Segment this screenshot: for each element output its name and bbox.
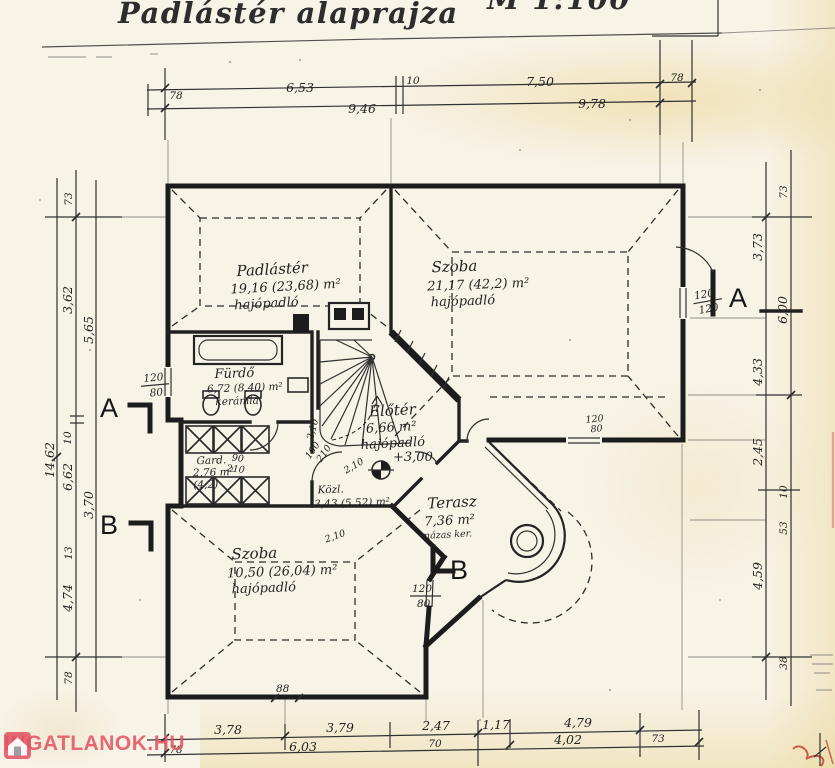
dim-label: 78 [169,90,183,102]
dim-label: 10 [406,75,420,87]
dim-label: 73 [778,185,790,199]
room-name: Előtér [368,400,418,421]
dim-label: 38 [778,656,790,670]
sink [288,378,308,392]
room-szoba-bottom: Szoba 10,50 (26,04) m² hajópadló [226,542,338,598]
dim-label: 4,74 [60,584,75,613]
room-area: 10,50 (26,04) m² [227,563,338,582]
room-floor: mázas ker. [421,528,473,542]
room-terasz: Terasz 7,36 m² mázas ker. [419,492,479,542]
svg-text:88: 88 [276,683,290,695]
dim-label: 3,70 [81,491,96,519]
dim-label: 73 [651,733,665,745]
dim-label: 4,33 [750,358,765,387]
title-block: Padlástér alaprajza M 1:100 [42,0,835,57]
room-floor: hajópadló [231,580,296,597]
dim-label: 53 [778,521,790,535]
scan-specks [39,59,761,721]
room-szoba-top: Szoba 21,17 (42,2) m² hajópadló [425,255,530,311]
room-area: 6,66 m² [366,419,417,437]
level-marker: +3,00 [368,450,433,479]
room-name: Fürdő [213,366,255,382]
room-floor: hajópadló [431,293,496,310]
margin-marks [39,59,833,766]
dim-label: 9,78 [578,96,606,111]
section-letter-a-left: A [100,393,118,423]
room-padlaster: Padlástér 19,16 (23,68) m² hajópadló [229,257,342,314]
room-name: Szoba [231,544,277,564]
level-value: +3,00 [393,450,433,465]
window-height: 80 [417,598,431,610]
terrace-column [511,525,543,557]
dim-label: 3,78 [214,722,242,737]
room-name: Szoba [431,257,477,277]
dim-label: 13 [63,546,75,560]
dim-label: 6,62 [60,463,75,491]
dim-chain-top: 78 6,53 10 7,50 78 9,46 9,78 [147,40,696,142]
dim-label: 73 [63,192,75,206]
dim-label: 3,62 [60,286,75,314]
dim-label: 7,50 [526,74,554,89]
watermark: INGATLANOK.HU [4,732,185,756]
room-name: Terasz [427,492,477,513]
window-height: 120 [698,301,720,316]
dim-label: 3,79 [326,720,354,735]
door-height: 210 [225,463,245,476]
dim-label: 5,65 [81,316,96,344]
window-height: 80 [149,386,164,399]
headroom-label: 2,10 [322,528,347,546]
dim-label: 10 [778,485,790,499]
dim-label: 78 [670,72,684,84]
dim-chain-right: 73 3,73 6,00 4,33 2,45 10 53 4,59 38 [750,150,812,706]
room-kozl: Közl. 3,43 (5,52) m² [313,482,390,511]
terrace [479,442,565,598]
room-name: Közl. [316,484,344,497]
room-area: 3,43 (5,52) m² [314,496,390,511]
dim-label: 2,47 [421,718,450,733]
room-floor: kerámia [215,395,259,409]
scale-note: M 1:100 [486,0,631,16]
dim-label: 6,03 [289,739,317,754]
section-letter-b-left: B [100,510,118,540]
door-gard-label: 90 210 [225,452,246,476]
dim-label: 4,02 [553,732,582,747]
dim-label: 70 [428,738,442,750]
window-mid-label: 120 80 [585,413,605,436]
plan-title: Padlástér alaprajza [117,0,459,30]
red-signature-scribble [793,746,823,766]
room-area: 6,72 (8,40) m² [207,381,283,396]
room-name: Padlástér [235,258,309,280]
window-width: 120 [143,371,164,385]
dim-label: 9,46 [348,101,376,116]
dim-label: 1,17 [482,717,510,732]
ingatlanok-house-icon [4,732,31,759]
watermark-text: INGATLANOK.HU [4,732,185,756]
room-eloter: Előtér 6,66 m² hajópadló [359,400,426,453]
room-area: 7,36 m² [424,512,475,530]
dim-label: 6,53 [286,80,314,95]
window-bottom-label: 120 80 [410,583,441,610]
faint-margin-text [810,655,833,690]
room-floor: hajópadló [234,295,299,313]
section-letter-a-right: A [729,283,747,313]
dim-label: 14,62 [42,442,57,478]
dim-chain-left: 73 3,62 5,65 10 6,62 3,70 13 4,74 78 14,… [42,170,122,712]
dim-label: 2,45 [750,438,765,467]
room-area: 21,17 (42,2) m² [426,276,530,295]
dim-label: 4,59 [750,562,765,591]
room-note: (4,2) [193,479,218,492]
floorplan-drawing: Padlástér alaprajza M 1:100 78 6,53 10 7… [0,0,835,768]
window-width: 120 [412,583,432,595]
room-area: 19,16 (23,68) m² [230,277,341,298]
room-name: Gard. [196,454,226,467]
dim-label: 4,79 [563,715,592,730]
room-furdo: Fürdő 6,72 (8,40) m² kerámia [206,365,283,409]
window-right-label: 120 120 [691,286,724,318]
headroom-label: 2,10 [341,456,366,477]
dim-label: 10 [62,431,74,445]
flue-block [293,314,309,332]
dim-label: 78 [63,671,75,685]
window-height: 80 [590,423,603,435]
dim-label: 3,73 [750,233,765,261]
dim-chain-bottom: 3,78 3,79 2,47 1,17 4,79 78 6,03 70 4,02… [147,710,704,766]
